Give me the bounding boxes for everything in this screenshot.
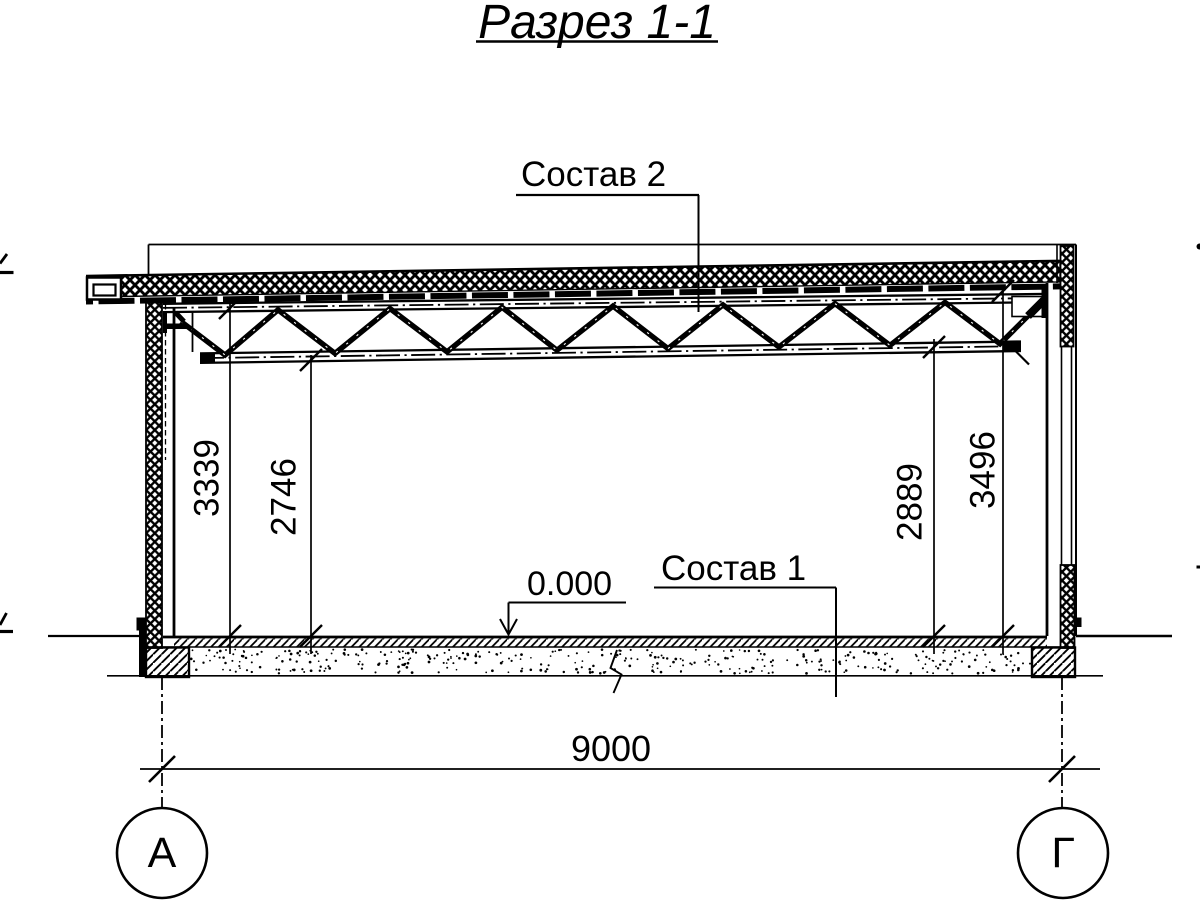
svg-text:2889: 2889 xyxy=(890,463,929,541)
svg-text:9000: 9000 xyxy=(571,728,651,769)
svg-text:Состав 2: Состав 2 xyxy=(521,155,666,194)
svg-text:0.000: 0.000 xyxy=(527,565,612,603)
svg-text:Состав 1: Состав 1 xyxy=(661,549,806,588)
svg-text:2746: 2746 xyxy=(264,458,303,536)
svg-text:Г: Г xyxy=(1051,829,1074,877)
svg-text:А: А xyxy=(148,829,177,877)
svg-text:3496: 3496 xyxy=(963,431,1002,509)
svg-text:3339: 3339 xyxy=(187,439,226,517)
